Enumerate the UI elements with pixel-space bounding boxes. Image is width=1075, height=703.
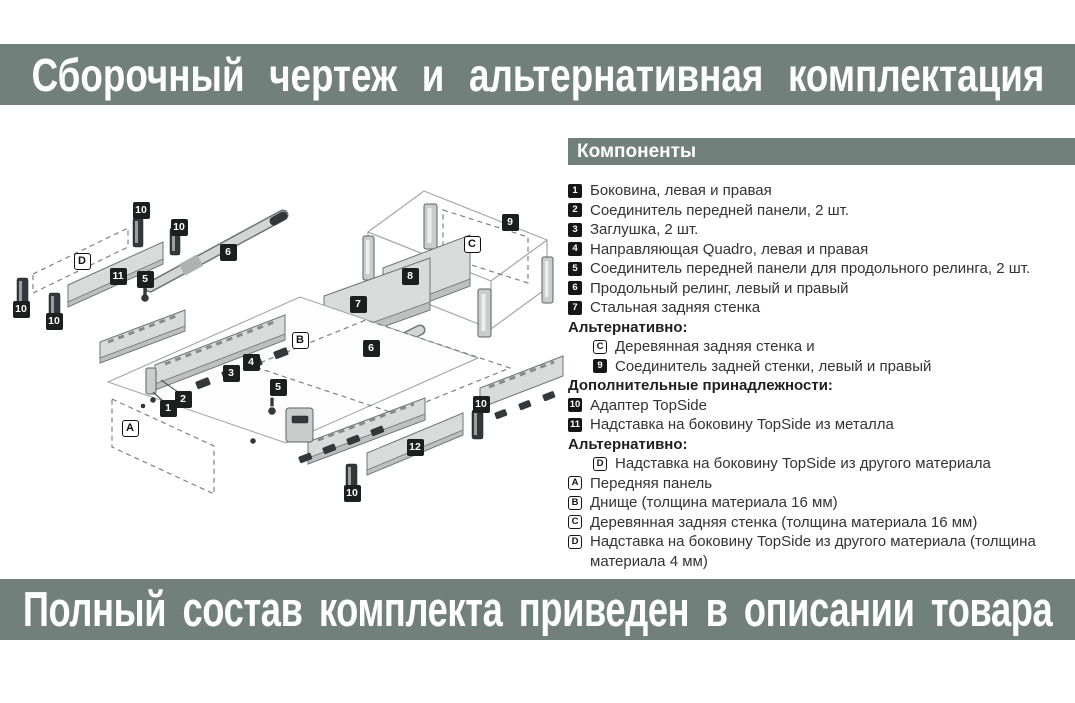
item-marker-C: C [568,515,582,529]
component-item-text: Стальная задняя стенка [590,298,760,318]
diagram-label-C: C [464,236,481,253]
item-marker-B: B [568,496,582,510]
diagram-label-6: 6 [220,244,237,261]
component-item: 11Надставка на боковину TopSide из метал… [568,415,1070,435]
diagram-label-1: 1 [160,400,177,417]
component-item: 10Адаптер TopSide [568,396,1070,416]
item-marker-11: 11 [568,418,582,432]
section-heading-text: Альтернативно: [568,318,688,338]
component-item-text: Надставка на боковину TopSide из другого… [590,532,1070,571]
component-item-text: Боковина, левая и правая [590,181,772,201]
diagram-label-5: 5 [270,379,287,396]
diagram-label-B: B [292,332,309,349]
component-item-text: Деревянная задняя стенка и [615,337,815,357]
diagram-label-11: 11 [110,268,127,285]
diagram-label-10: 10 [171,219,188,236]
components-section-heading: Альтернативно: [568,318,1070,338]
item-marker-1: 1 [568,184,582,198]
components-header: Компоненты [568,138,1075,165]
diagram-label-D: D [74,253,91,270]
diagram-labels: 101010101010115566987432112DCBA [0,130,565,575]
component-item-text: Соединитель передней панели для продольн… [590,259,1030,279]
section-heading-text: Дополнительные принадлежности: [568,376,833,396]
assembly-drawing: 101010101010115566987432112DCBA [0,130,565,575]
item-marker-6: 6 [568,281,582,295]
components-section-heading: Дополнительные принадлежности: [568,376,1070,396]
component-item-text: Заглушка, 2 шт. [590,220,698,240]
diagram-label-12: 12 [407,439,424,456]
component-item: DНадставка на боковину TopSide из другог… [568,532,1070,571]
components-section-heading: Альтернативно: [568,435,1070,455]
component-item: 5Соединитель передней панели для продоль… [568,259,1070,279]
component-item: 6Продольный релинг, левый и правый [568,279,1070,299]
item-marker-D: D [593,457,607,471]
component-item-text: Адаптер TopSide [590,396,707,416]
diagram-label-8: 8 [402,268,419,285]
component-item-text: Надставка на боковину TopSide из другого… [615,454,991,474]
component-item: 4Направляющая Quadro, левая и правая [568,240,1070,260]
diagram-label-10: 10 [473,396,490,413]
component-item: 1Боковина, левая и правая [568,181,1070,201]
item-marker-D: D [568,535,582,549]
diagram-label-10: 10 [133,202,150,219]
component-item: 3Заглушка, 2 шт. [568,220,1070,240]
diagram-label-3: 3 [223,365,240,382]
top-banner-text: Сборочный чертеж и альтернативная компле… [31,48,1044,102]
diagram-label-10: 10 [13,301,30,318]
component-item: 2Соединитель передней панели, 2 шт. [568,201,1070,221]
item-marker-C: C [593,340,607,354]
component-item-text: Направляющая Quadro, левая и правая [590,240,868,260]
component-item: CДеревянная задняя стенка и [568,337,1070,357]
component-item-text: Днище (толщина материала 16 мм) [590,493,838,513]
component-item-text: Передняя панель [590,474,712,494]
item-marker-7: 7 [568,301,582,315]
components-list: 1Боковина, левая и правая2Соединитель пе… [568,181,1070,571]
item-marker-2: 2 [568,203,582,217]
diagram-label-6: 6 [363,340,380,357]
diagram-label-2: 2 [175,391,192,408]
item-marker-5: 5 [568,262,582,276]
bottom-banner: Полный состав комплекта приведен в описа… [0,579,1075,640]
component-item-text: Соединитель передней панели, 2 шт. [590,201,849,221]
page: Сборочный чертеж и альтернативная компле… [0,0,1075,703]
diagram-label-10: 10 [46,313,63,330]
item-marker-A: A [568,476,582,490]
component-item: CДеревянная задняя стенка (толщина матер… [568,513,1070,533]
diagram-label-4: 4 [243,354,260,371]
component-item-text: Продольный релинг, левый и правый [590,279,849,299]
diagram-label-9: 9 [502,214,519,231]
component-item-text: Надставка на боковину TopSide из металла [590,415,894,435]
item-marker-9: 9 [593,359,607,373]
diagram-label-5: 5 [137,271,154,288]
item-marker-4: 4 [568,242,582,256]
components-header-text: Компоненты [577,141,696,163]
component-item: 7Стальная задняя стенка [568,298,1070,318]
component-item: BДнище (толщина материала 16 мм) [568,493,1070,513]
component-item: DНадставка на боковину TopSide из другог… [568,454,1070,474]
item-marker-3: 3 [568,223,582,237]
component-item: 9Соединитель задней стенки, левый и прав… [568,357,1070,377]
section-heading-text: Альтернативно: [568,435,688,455]
component-item-text: Соединитель задней стенки, левый и правы… [615,357,931,377]
component-item-text: Деревянная задняя стенка (толщина матери… [590,513,977,533]
diagram-label-10: 10 [344,485,361,502]
diagram-label-7: 7 [350,296,367,313]
component-item: AПередняя панель [568,474,1070,494]
bottom-banner-text: Полный состав комплекта приведен в описа… [23,582,1053,638]
item-marker-10: 10 [568,398,582,412]
top-banner: Сборочный чертеж и альтернативная компле… [0,44,1075,105]
diagram-label-A: A [122,420,139,437]
